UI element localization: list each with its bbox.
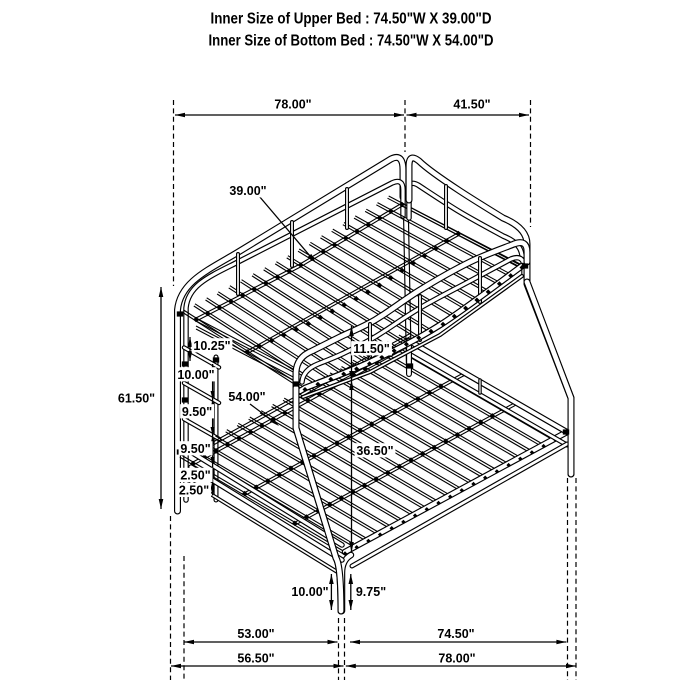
svg-text:11.50": 11.50" (353, 342, 390, 356)
svg-text:53.00": 53.00" (237, 627, 274, 641)
svg-text:9.50": 9.50" (182, 405, 212, 419)
svg-text:Inner Size of Bottom Bed : 74.: Inner Size of Bottom Bed : 74.50"W X 54.… (209, 33, 494, 50)
svg-text:9.75": 9.75" (356, 585, 386, 599)
svg-text:9.50": 9.50" (180, 442, 210, 456)
svg-text:56.50": 56.50" (237, 652, 274, 666)
svg-text:10.00": 10.00" (177, 368, 214, 382)
svg-text:54.00": 54.00" (228, 390, 265, 404)
svg-text:61.50": 61.50" (118, 392, 155, 406)
svg-text:10.00": 10.00" (291, 585, 328, 599)
svg-text:10.25": 10.25" (193, 339, 230, 353)
svg-text:74.50": 74.50" (437, 627, 474, 641)
svg-text:39.00": 39.00" (229, 184, 266, 198)
svg-text:41.50": 41.50" (453, 98, 490, 112)
svg-text:78.00": 78.00" (438, 652, 475, 666)
svg-text:36.50": 36.50" (356, 444, 393, 458)
svg-text:2.50": 2.50" (179, 484, 209, 498)
svg-text:78.00": 78.00" (274, 98, 311, 112)
svg-text:Inner Size of Upper Bed : 74.5: Inner Size of Upper Bed : 74.50"W X 39.0… (211, 11, 492, 28)
svg-text:2.50": 2.50" (180, 469, 210, 483)
